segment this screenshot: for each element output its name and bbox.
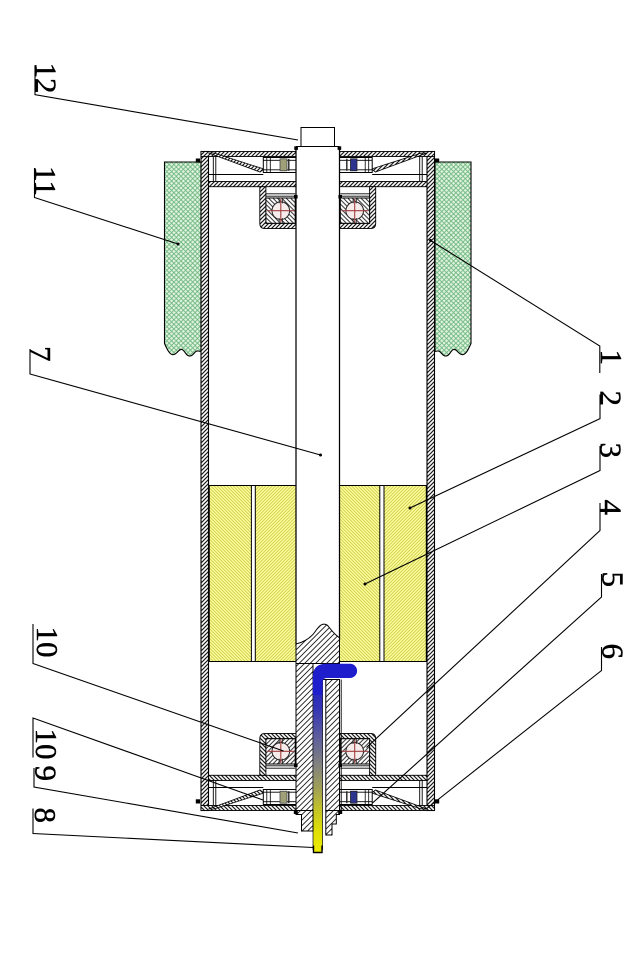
- svg-text:1: 1: [594, 350, 629, 366]
- svg-text:6: 6: [596, 644, 630, 660]
- svg-text:11: 11: [28, 166, 63, 196]
- svg-text:10: 10: [29, 729, 64, 760]
- svg-text:3: 3: [594, 443, 629, 459]
- svg-text:10: 10: [30, 627, 65, 658]
- svg-text:2: 2: [594, 391, 629, 407]
- svg-text:7: 7: [23, 346, 58, 362]
- svg-text:5: 5: [596, 572, 630, 588]
- svg-text:9: 9: [29, 766, 64, 782]
- svg-text:4: 4: [594, 500, 629, 516]
- svg-text:8: 8: [28, 808, 63, 824]
- svg-text:12: 12: [29, 63, 64, 94]
